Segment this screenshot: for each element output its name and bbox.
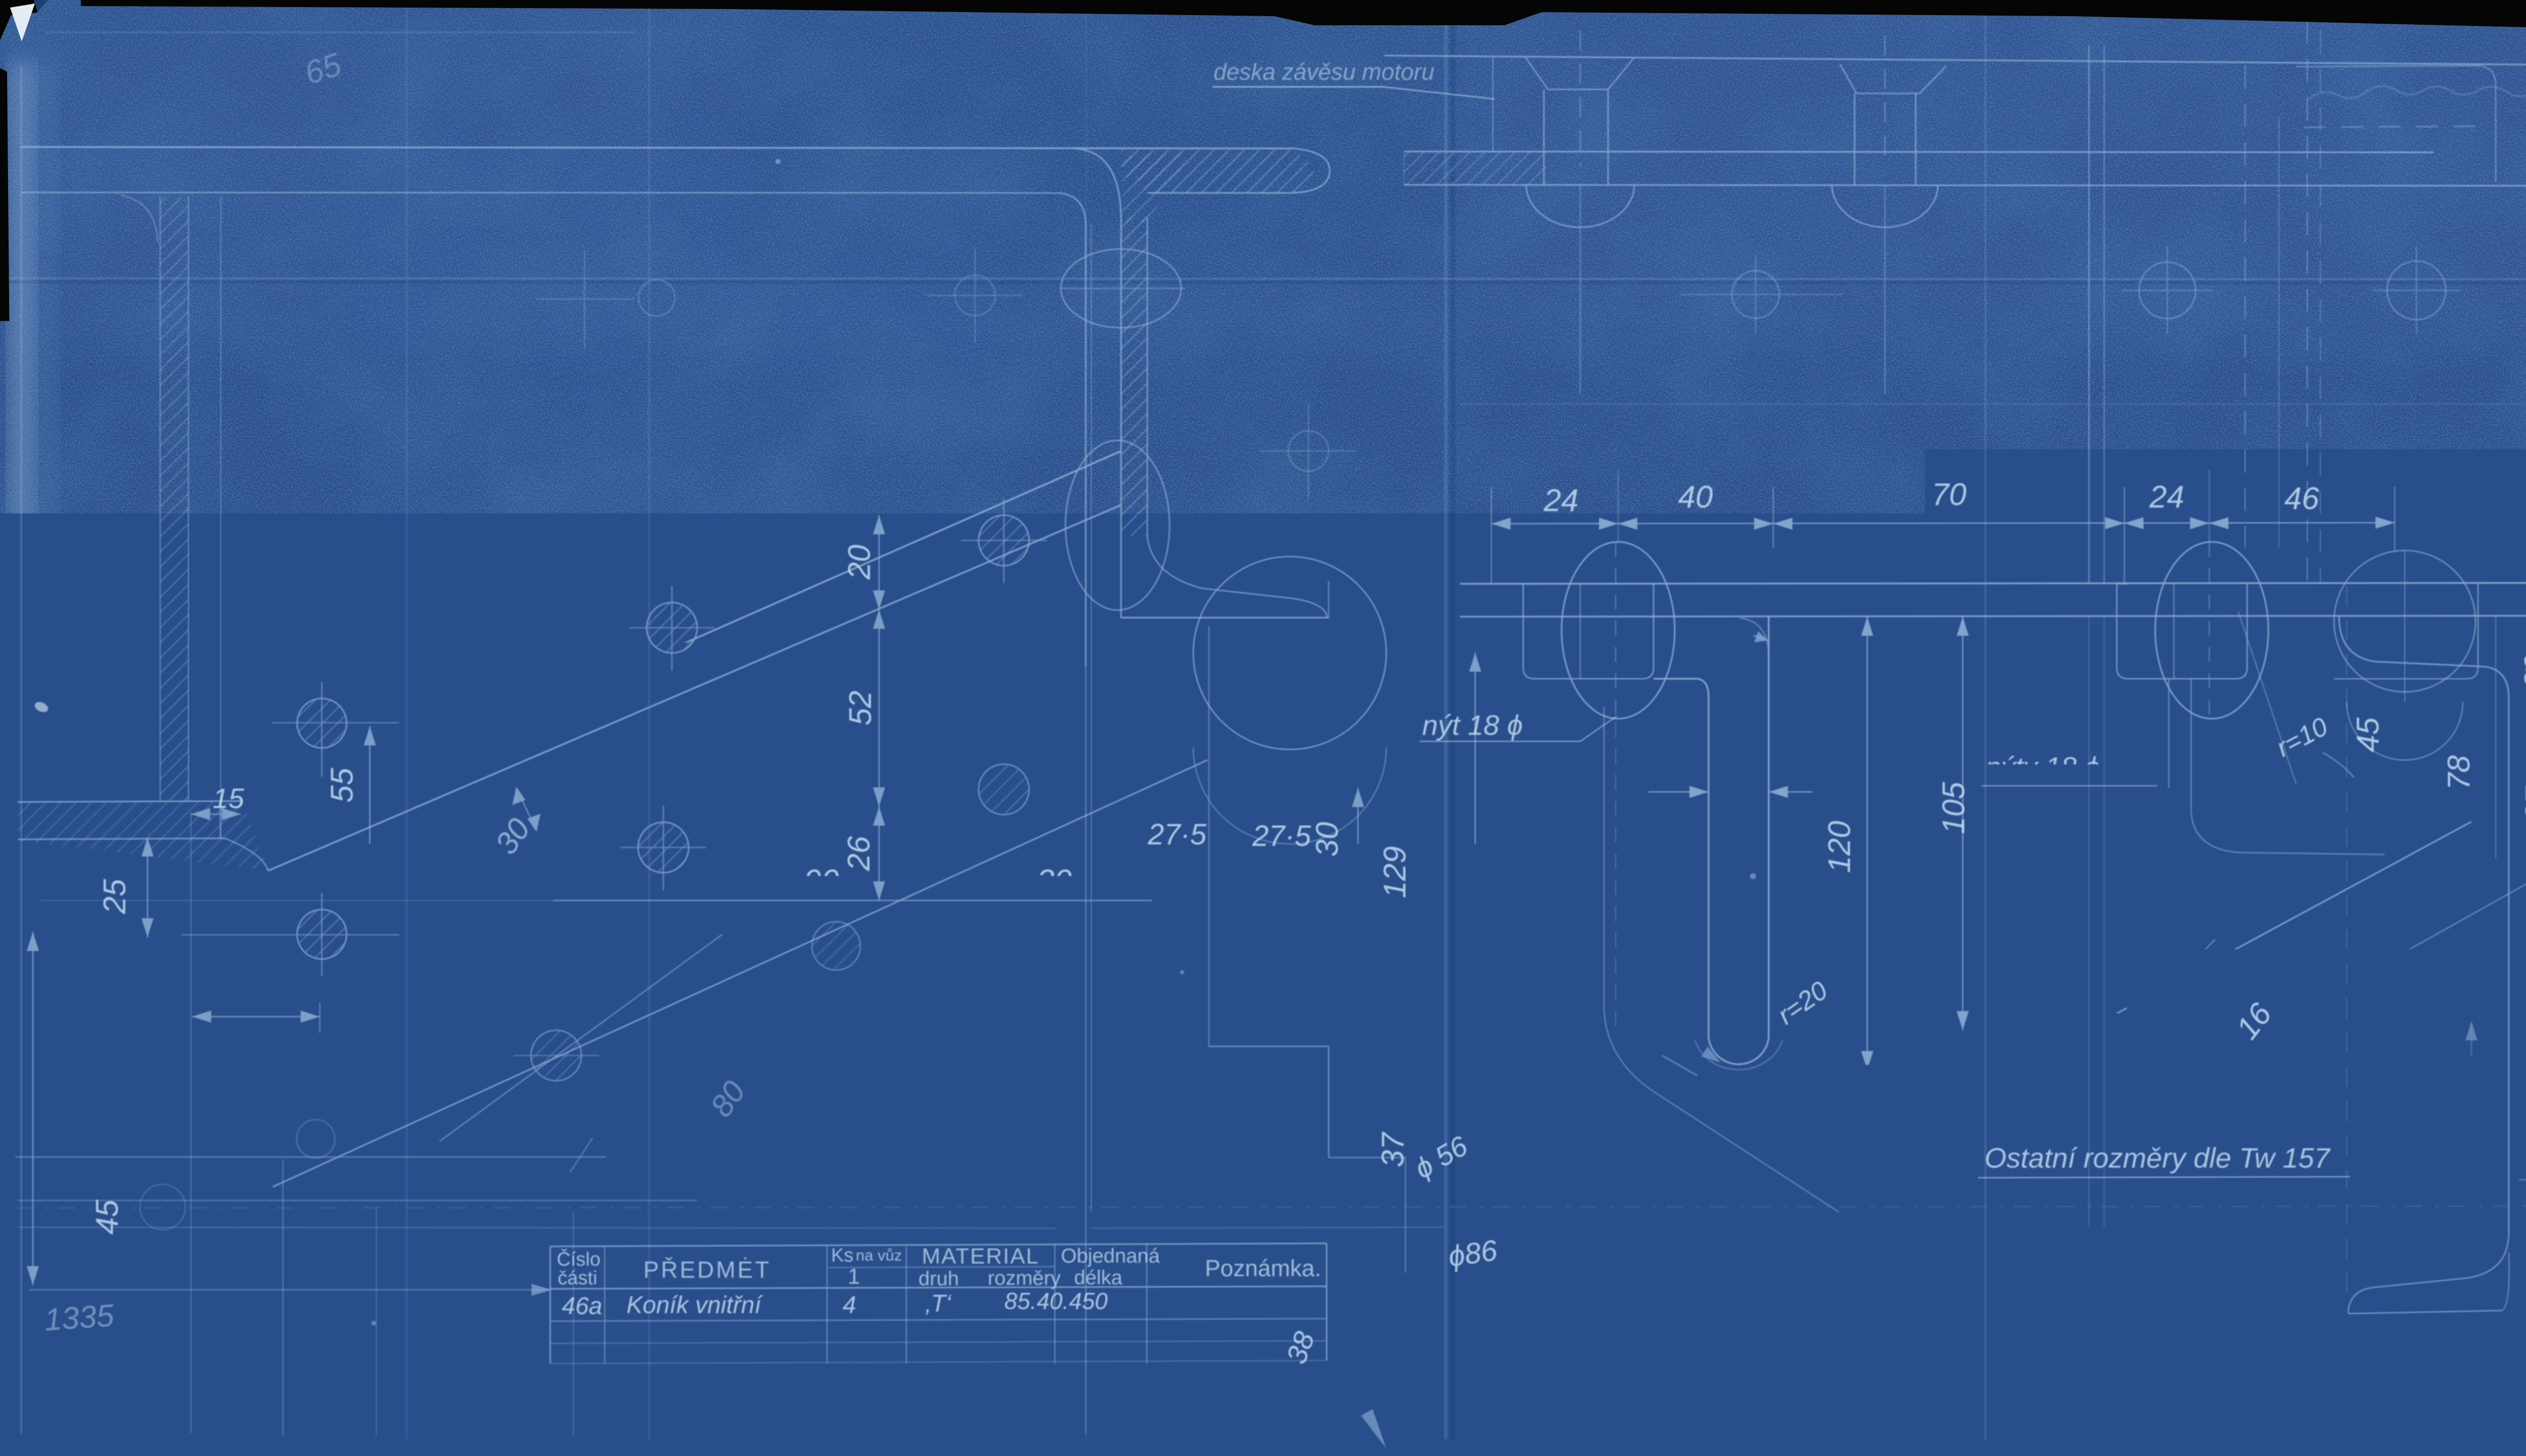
svg-text:25: 25 xyxy=(98,879,132,914)
svg-text:78: 78 xyxy=(2442,755,2476,790)
svg-text:‚T‘: ‚T‘ xyxy=(925,1290,952,1317)
svg-text:120: 120 xyxy=(1822,821,1857,873)
svg-text:1: 1 xyxy=(848,1264,860,1289)
svg-text:85.40.450: 85.40.450 xyxy=(1004,1288,1108,1314)
svg-text:druh: druh xyxy=(918,1268,959,1290)
svg-text:90: 90 xyxy=(804,864,839,898)
svg-text:4: 4 xyxy=(843,1292,856,1319)
svg-text:27·5: 27·5 xyxy=(1147,818,1207,851)
svg-text:45: 45 xyxy=(1209,909,1244,944)
svg-text:45: 45 xyxy=(90,1199,125,1234)
svg-text:Číslo: Číslo xyxy=(557,1248,601,1270)
svg-text:Objednaná: Objednaná xyxy=(1061,1245,1160,1267)
svg-text:55: 55 xyxy=(325,768,360,802)
svg-text:deska závěsu motoru: deska závěsu motoru xyxy=(1213,59,1434,85)
svg-text:Ostatní rozměry dle Tw 157: Ostatní rozměry dle Tw 157 xyxy=(1984,1142,2331,1174)
svg-text:16: 16 xyxy=(1721,756,1756,791)
svg-text:24: 24 xyxy=(2149,480,2184,515)
svg-text:Poznámka.: Poznámka. xyxy=(1205,1255,1321,1281)
svg-text:20: 20 xyxy=(842,545,877,580)
svg-text:15: 15 xyxy=(213,782,245,814)
svg-text:45: 45 xyxy=(2351,717,2386,752)
svg-text:MATERIAL: MATERIAL xyxy=(922,1244,1040,1269)
svg-text:1335: 1335 xyxy=(43,1298,115,1337)
svg-text:30: 30 xyxy=(2518,655,2526,689)
svg-text:PŘEDMĖT: PŘEDMĖT xyxy=(644,1257,771,1283)
svg-text:30: 30 xyxy=(1037,864,1072,898)
svg-text:části: části xyxy=(558,1268,597,1289)
svg-text:27·5: 27·5 xyxy=(1252,820,1311,852)
svg-text:27: 27 xyxy=(2519,785,2526,822)
svg-text:35: 35 xyxy=(245,977,280,1012)
svg-text:Koník vnitřní: Koník vnitřní xyxy=(626,1292,763,1319)
svg-text:26: 26 xyxy=(842,836,877,871)
svg-text:ϕ86: ϕ86 xyxy=(1446,1234,1500,1273)
svg-text:rozměry: rozměry xyxy=(988,1267,1060,1289)
svg-text:129: 129 xyxy=(1378,846,1413,898)
svg-text:délka: délka xyxy=(1074,1267,1123,1289)
svg-text:24: 24 xyxy=(1543,483,1579,518)
svg-text:70: 70 xyxy=(1932,477,1967,512)
svg-text:Ks: Ks xyxy=(831,1245,853,1266)
svg-text:46: 46 xyxy=(2285,481,2319,516)
svg-text:46a: 46a xyxy=(562,1293,602,1320)
svg-text:52: 52 xyxy=(843,691,878,726)
svg-text:40: 40 xyxy=(1678,480,1713,515)
svg-text:105: 105 xyxy=(1936,782,1971,834)
svg-text:nýty 18 ϕ: nýty 18 ϕ xyxy=(1985,751,2100,783)
svg-text:37: 37 xyxy=(1376,1131,1411,1167)
svg-text:nýt 18 ϕ: nýt 18 ϕ xyxy=(1422,709,1523,741)
svg-text:30: 30 xyxy=(1310,822,1345,857)
svg-text:na vůz: na vůz xyxy=(856,1246,902,1264)
